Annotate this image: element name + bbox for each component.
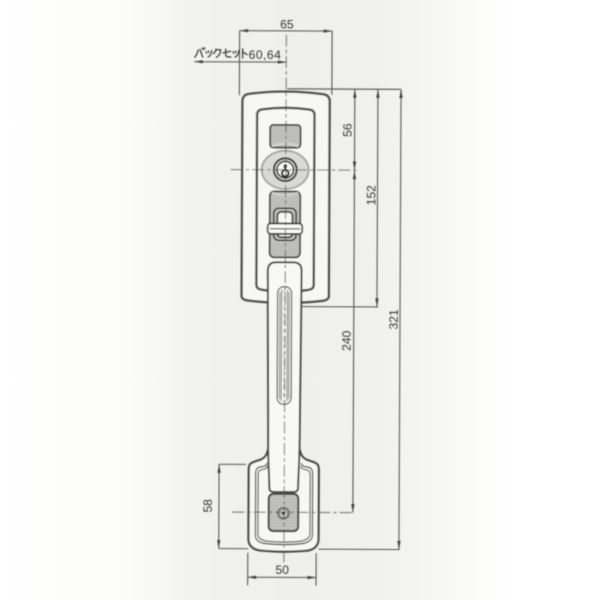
svg-text:321: 321 xyxy=(387,309,401,330)
svg-text:60,64: 60,64 xyxy=(249,48,282,62)
svg-text:152: 152 xyxy=(364,185,378,206)
svg-text:65: 65 xyxy=(280,18,294,32)
svg-text:58: 58 xyxy=(201,499,215,513)
svg-text:50: 50 xyxy=(275,563,289,577)
svg-text:240: 240 xyxy=(340,330,354,351)
svg-text:56: 56 xyxy=(341,123,355,137)
